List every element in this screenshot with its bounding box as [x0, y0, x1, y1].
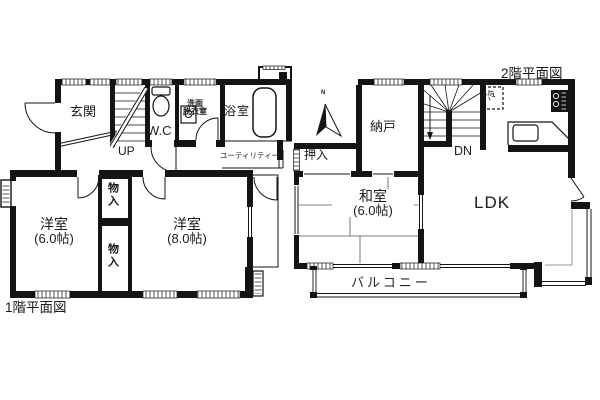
room-label-washroom: 洗面 脱衣室 [183, 100, 207, 117]
room-label-entrance: 玄関 [70, 105, 96, 119]
floor-plan-image: 玄関 W.C 洗面 脱衣室 浴室 ユーティリティー UP 物入 物入 洋室 (6… [0, 0, 600, 400]
floor2-title: 2階平面図 [501, 67, 563, 81]
balcony-label: バルコニー [351, 276, 431, 290]
toilet-icon [152, 87, 170, 116]
room-label-utility: ユーティリティー [220, 152, 279, 160]
bathtub-icon [253, 88, 276, 137]
north-label: N [321, 90, 325, 96]
stairs-up-label: UP [118, 145, 135, 158]
room-label-oshiire: 押入 [304, 149, 328, 162]
stove-icon [551, 90, 568, 112]
floor2-door-arcs [571, 178, 584, 201]
kitchen-counter [508, 122, 573, 145]
room-label-ldk: LDK [474, 194, 510, 212]
closet-label-top: 物入 [106, 182, 118, 208]
room-label-japanese: 和室 (6.0帖) [332, 189, 414, 217]
floor1-title: 1階平面図 [5, 301, 67, 315]
north-arrow-icon [316, 104, 341, 136]
room-label-western8: 洋室 (8.0帖) [146, 217, 228, 245]
stairs-down-label: DN [454, 145, 472, 158]
room-label-wc: W.C [147, 124, 172, 138]
room-label-western6: 洋室 (6.0帖) [13, 217, 95, 245]
room-label-bathroom: 浴室 [224, 105, 250, 118]
room-label-storage: 納戸 [370, 120, 396, 134]
floor2-step-lines [545, 210, 572, 265]
closet-label-bottom: 物入 [106, 243, 118, 269]
floor1-walls [1, 66, 292, 298]
stairs-up [110, 87, 148, 148]
